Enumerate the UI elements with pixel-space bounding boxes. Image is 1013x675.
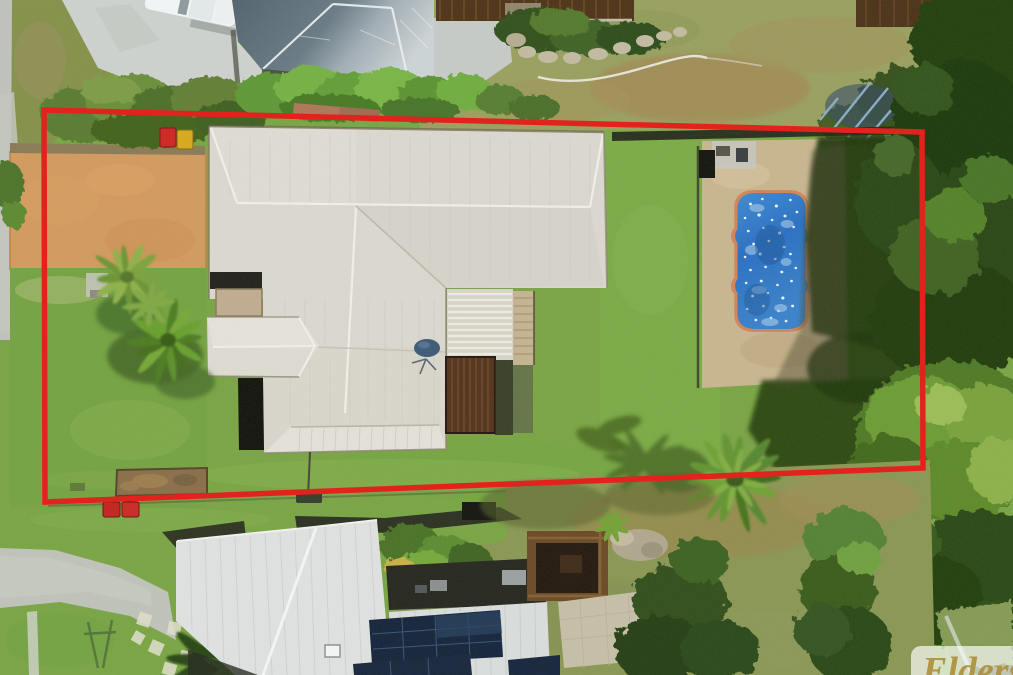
svg-text:Elders: Elders: [921, 650, 1013, 675]
